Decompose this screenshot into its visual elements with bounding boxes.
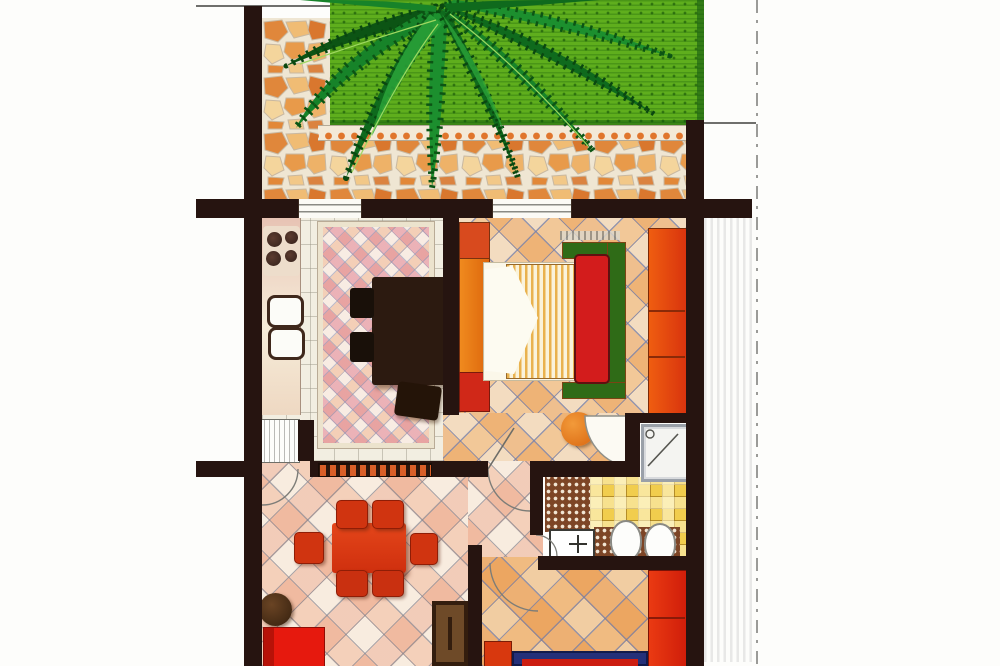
wall-top-1 [262,199,298,218]
bed2-cover [522,659,638,666]
living-chair-bottom-2 [372,570,404,597]
wall-top-2 [360,199,492,218]
bedroom-wardrobe-right [648,228,688,414]
site-line-top [196,5,336,7]
bed-headboard [574,254,610,384]
kitchen-window [298,199,362,218]
cabinet-divider [649,617,685,619]
living-chair-top-1 [336,500,368,529]
dining-chair-bottom [394,381,442,421]
stove-burner-4 [285,250,297,262]
wardrobe-right-divider-2 [649,356,685,358]
living-table-red [332,523,406,573]
wall-stub-top-left [196,199,244,218]
bedroom-window [492,199,572,218]
lawn [330,0,704,125]
wall-top-3 [570,199,752,218]
kitchen-sink-upper [267,295,304,328]
red-nightstand [484,641,512,666]
stove-burner-1 [267,232,282,247]
wall-living-room2 [468,545,482,666]
orange-pouf [561,412,595,446]
red-sofa [263,627,325,666]
tv-unit [432,601,468,666]
dining-chair-left-2 [350,332,374,362]
living-chair-right [410,533,438,565]
wall-bath-left [530,461,543,535]
bedroom-wardrobe-left-top [459,222,490,260]
wall-kitchen-bedroom [443,218,459,415]
wall-shower-left [625,413,640,477]
wall-stub-mid-left [196,461,244,477]
stove-burner-3 [266,251,281,266]
wall-kitchen-door-jamb [298,420,314,461]
wall-mid-c [530,461,640,477]
toilet [610,520,642,561]
hall-floor [443,413,625,461]
living-chair-left [294,532,324,564]
kitchen-sink-lower [268,327,305,360]
kitchen-appliance [258,419,300,463]
bathroom-rug [545,474,590,532]
tile-dot-border [318,125,686,141]
wall-left [244,6,262,666]
dining-chair-left-1 [350,288,374,318]
bedroom-shelf [560,231,620,240]
living-chair-top-2 [372,500,404,529]
wardrobe-right-divider-1 [649,310,685,312]
property-dash-line [756,0,758,666]
stove-burner-2 [285,231,298,244]
round-coffee-table [259,593,292,626]
right-shade-band [704,200,754,662]
wall-right [686,120,704,666]
dining-table-dark [372,277,448,385]
bed-frame-bottom [562,382,626,399]
living-chair-bottom-1 [336,570,368,597]
shower-tray [641,424,692,482]
wall-bath-bottom [538,556,686,570]
floor-plan-canvas [0,0,1000,666]
site-line-right [704,122,756,124]
kitchen-wall-radiator-overlay [318,464,432,477]
